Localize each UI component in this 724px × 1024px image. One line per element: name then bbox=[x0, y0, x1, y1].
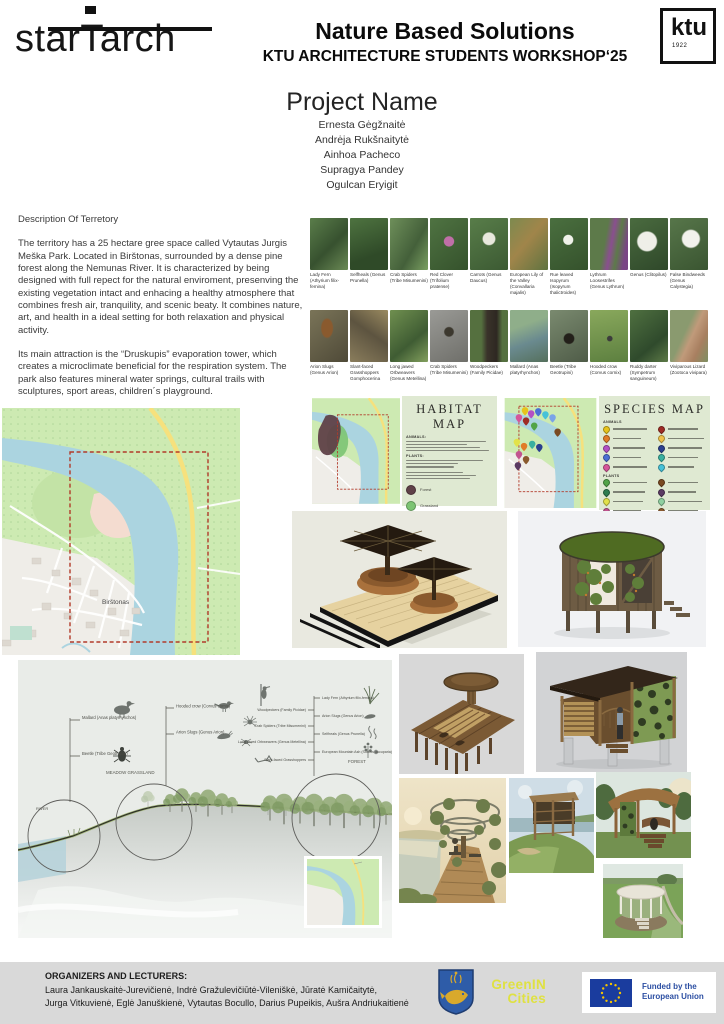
photo-lookout-pavilion bbox=[509, 778, 594, 873]
legend-line bbox=[406, 444, 467, 445]
eu-funding-line-2: European Union bbox=[642, 992, 704, 1002]
member-name: Ernesta Gėgžnaitė bbox=[0, 119, 724, 132]
species-card: Red Clover (Trifolium pratense) bbox=[430, 218, 468, 304]
project-title: Project Name bbox=[0, 88, 724, 117]
legend-line bbox=[406, 472, 463, 473]
birstonas-coat-of-arms bbox=[437, 968, 475, 1016]
section-label: European Mountain Ash (Sorbus aucuparia) bbox=[322, 750, 392, 754]
render-deck-towers bbox=[292, 511, 507, 648]
member-name: Andrėja Rukšnaitytė bbox=[0, 134, 724, 147]
species-grid-row2: Arion Slugs (Genus Arion) Slant-faced Gr… bbox=[310, 310, 708, 396]
logo-crossbar bbox=[48, 27, 212, 31]
habitat-mini-map-frame bbox=[310, 396, 402, 506]
habitat-legend-block: HABITAT MAP ANIMALS: PLANTS: Forest Gras… bbox=[406, 396, 493, 504]
species-caption: Hooded crow (Corvus cornix) bbox=[590, 364, 628, 396]
species-card: Selfheals (Genus Prunella) bbox=[350, 218, 388, 304]
species-card: Viviparous Lizard (Zootoca vivipara) bbox=[670, 310, 708, 396]
studio-logo-text: starTarch bbox=[15, 18, 176, 60]
legend-line bbox=[406, 466, 454, 467]
legend-item bbox=[603, 445, 652, 452]
species-photo bbox=[430, 218, 468, 270]
legend-item bbox=[603, 479, 652, 486]
species-card: Arion Slugs (Genus Arion) bbox=[310, 310, 348, 396]
footer-bar: ORGANIZERS AND LECTURERS: Laura Jankausk… bbox=[0, 962, 724, 1024]
species-caption: Mallard (Anas platyrhynchos) bbox=[510, 364, 548, 396]
organizers-line-1: Laura Jankauskaitė-Jurevičienė, Indrė Gr… bbox=[45, 984, 425, 997]
species-caption: False Bindweeds (Genus Calystegia) bbox=[670, 272, 708, 304]
logo-mark bbox=[85, 6, 96, 14]
species-photo bbox=[390, 218, 428, 270]
species-animal-legend bbox=[603, 426, 706, 471]
location-map: Birštonas bbox=[2, 408, 240, 655]
species-caption: Slant-faced Grasshoppers Gomphocerina bbox=[350, 364, 388, 396]
greenin-line-1: GreenIN bbox=[474, 978, 546, 992]
species-card: Ruddy darter (Sympetrum sanguineum) bbox=[630, 310, 668, 396]
species-caption: Arion Slugs (Genus Arion) bbox=[310, 364, 348, 396]
section-label: Hooded crow (Corvus cornix) bbox=[176, 704, 231, 709]
poster-subtitle: KTU ARCHITECTURE STUDENTS WORKSHOP‘25 bbox=[235, 48, 655, 66]
species-animals-heading: ANIMALS bbox=[603, 420, 706, 424]
species-card: Beetle (Tribe Geotrupini) bbox=[550, 310, 588, 396]
species-caption: European Lily of the Valley (Convallaria… bbox=[510, 272, 548, 304]
species-mini-map bbox=[504, 398, 597, 508]
legend-item bbox=[658, 479, 707, 486]
legend-item bbox=[658, 498, 707, 505]
species-caption: Carrots (Genus Daucus) bbox=[470, 272, 508, 304]
photo-round-gazebo bbox=[603, 864, 683, 938]
poster-title: Nature Based Solutions bbox=[235, 18, 655, 45]
greenin-line-2: Cities bbox=[474, 992, 546, 1006]
inset-map bbox=[304, 856, 382, 928]
project-block: Project Name Ernesta Gėgžnaitė Andrėja R… bbox=[0, 88, 724, 192]
section-label: Arion Slugs (Genus Arion) bbox=[322, 714, 364, 718]
legend-item bbox=[603, 435, 652, 442]
eu-flag bbox=[590, 979, 632, 1007]
species-card: Lady Fern (Athyrium filix-femina) bbox=[310, 218, 348, 304]
species-caption: Genus (Clitopilus) bbox=[630, 272, 668, 304]
species-grid-row1: Lady Fern (Athyrium filix-femina) Selfhe… bbox=[310, 218, 708, 304]
species-card: Mallard (Anas platyrhynchos) bbox=[510, 310, 548, 396]
species-card: Genus (Clitopilus) bbox=[630, 218, 668, 304]
description-paragraph-2: Its main attraction is the “Druskupis” e… bbox=[18, 349, 304, 398]
section-label: Crab Spiders (Tribe Misumenini) bbox=[254, 724, 306, 728]
species-photo bbox=[510, 310, 548, 362]
species-photo bbox=[310, 310, 348, 362]
eu-funding-badge: Funded by the European Union bbox=[582, 972, 716, 1013]
legend-item bbox=[658, 426, 707, 433]
territory-description: Description Of Terretory The territory h… bbox=[18, 214, 304, 410]
species-card: Crab Spiders (Tribe Misumenini) bbox=[390, 218, 428, 304]
species-caption: Crab Spiders (Tribe Misumenini) bbox=[430, 364, 468, 396]
legend-line bbox=[406, 447, 480, 448]
ktu-logo-year: 1922 bbox=[672, 43, 713, 49]
ktu-logo-text: ktu bbox=[671, 16, 713, 40]
habitat-map-panel: HABITAT MAP ANIMALS: PLANTS: Forest Gras… bbox=[310, 396, 497, 506]
species-caption: Rue leaved Isopyrum (Isopyrum thalictroi… bbox=[550, 272, 588, 304]
species-card: Slant-faced Grasshoppers Gomphocerina bbox=[350, 310, 388, 396]
legend-item bbox=[658, 435, 707, 442]
eu-funding-text: Funded by the European Union bbox=[642, 982, 704, 1002]
species-photo bbox=[350, 310, 388, 362]
legend-line bbox=[406, 450, 489, 451]
species-mini-map-frame bbox=[502, 396, 599, 510]
species-card: Lythrum Loosestrifes (Genus Lythrum) bbox=[590, 218, 628, 304]
species-photo bbox=[590, 310, 628, 362]
section-label: Selfheals (Genus Prunella) bbox=[322, 732, 365, 736]
section-label: Long jawed Orbweavers (Genus Metellina) bbox=[238, 740, 306, 744]
section-diagram: Mallard (Anas platyrhynchos) Beetle (Tri… bbox=[18, 660, 392, 938]
species-card: Long jawed Orbweavers (Genus Metellina) bbox=[390, 310, 428, 396]
species-card: Woodpeckers (Family Picidae) bbox=[470, 310, 508, 396]
species-card: Carrots (Genus Daucus) bbox=[470, 218, 508, 304]
species-caption: Viviparous Lizard (Zootoca vivipara) bbox=[670, 364, 708, 396]
description-heading: Description Of Terretory bbox=[18, 214, 304, 226]
legend-item bbox=[603, 454, 652, 461]
legend-item bbox=[658, 445, 707, 452]
legend-item bbox=[603, 489, 652, 496]
species-photo bbox=[590, 218, 628, 270]
town-label: Birštonas bbox=[102, 599, 130, 606]
member-name: Supragya Pandey bbox=[0, 164, 724, 177]
studio-logo: starTarch bbox=[15, 18, 215, 74]
species-caption: Crab Spiders (Tribe Misumenini) bbox=[390, 272, 428, 304]
habitat-legend-forest: Forest bbox=[406, 485, 493, 495]
eu-funding-line-1: Funded by the bbox=[642, 982, 704, 992]
species-caption: Selfheals (Genus Prunella) bbox=[350, 272, 388, 304]
photo-curved-pavilion bbox=[596, 772, 691, 858]
species-photo bbox=[630, 310, 668, 362]
member-name: Ainhoa Pacheco bbox=[0, 149, 724, 162]
species-caption: Ruddy darter (Sympetrum sanguineum) bbox=[630, 364, 668, 396]
river-water bbox=[18, 836, 66, 882]
section-label: Woodpeckers (Family Picidae) bbox=[257, 708, 306, 712]
species-caption: Long jawed Orbweavers (Genus Metellina) bbox=[390, 364, 428, 396]
species-legend-block: SPECIES MAP ANIMALS PLANTS bbox=[603, 396, 706, 508]
legend-line bbox=[406, 475, 476, 476]
species-card: Crab Spiders (Tribe Misumenini) bbox=[430, 310, 468, 396]
render-green-roof-tower bbox=[518, 511, 706, 647]
legend-label: Forest bbox=[420, 487, 431, 492]
habitat-map-title: HABITAT MAP bbox=[406, 402, 493, 432]
legend-line bbox=[406, 460, 483, 461]
section-label: Slant-faced Grasshoppers bbox=[264, 758, 306, 762]
species-photo bbox=[670, 310, 708, 362]
green-roof bbox=[560, 532, 664, 562]
species-card: Rue leaved Isopyrum (Isopyrum thalictroi… bbox=[550, 218, 588, 304]
species-photo bbox=[670, 218, 708, 270]
species-card: False Bindweeds (Genus Calystegia) bbox=[670, 218, 708, 304]
legend-item bbox=[603, 464, 652, 471]
organizers-line-2: Jurga Vitkuvienė, Eglė Januškienė, Vytau… bbox=[45, 997, 425, 1010]
ktu-logo: ktu 1922 bbox=[660, 8, 716, 64]
legend-item bbox=[658, 454, 707, 461]
species-card: Hooded crow (Corvus cornix) bbox=[590, 310, 628, 396]
species-card: European Lily of the Valley (Convallaria… bbox=[510, 218, 548, 304]
species-caption: Red Clover (Trifolium pratense) bbox=[430, 272, 468, 304]
species-photo bbox=[390, 310, 428, 362]
section-label: Arion Slugs (Genus Arion) bbox=[176, 730, 225, 735]
person-figure bbox=[617, 707, 623, 739]
grassland-dot bbox=[406, 501, 416, 511]
species-plants-heading: PLANTS bbox=[603, 474, 706, 478]
species-photo bbox=[310, 218, 348, 270]
section-label: Lady Fern (Athyrium filix-femina) bbox=[322, 696, 374, 700]
species-map-panel: SPECIES MAP ANIMALS PLANTS bbox=[502, 396, 710, 510]
species-caption: Woodpeckers (Family Picidae) bbox=[470, 364, 508, 396]
legend-item bbox=[603, 426, 652, 433]
zone-label-meadow: MEADOW GRASSLAND bbox=[106, 770, 155, 775]
species-photo bbox=[430, 310, 468, 362]
habitat-plants-heading: PLANTS: bbox=[406, 454, 493, 458]
species-caption: Lady Fern (Athyrium filix-femina) bbox=[310, 272, 348, 304]
legend-label: Grassland bbox=[420, 503, 438, 508]
species-photo bbox=[350, 218, 388, 270]
render-green-wall-pavilion bbox=[536, 652, 687, 772]
legend-item bbox=[658, 489, 707, 496]
species-photo bbox=[510, 218, 548, 270]
legend-line bbox=[406, 478, 470, 479]
greenin-cities-logo: GreenIN Cities bbox=[474, 978, 546, 1006]
species-photo bbox=[550, 310, 588, 362]
render-deck-round-canopy bbox=[399, 654, 524, 774]
organizers-heading: ORGANIZERS AND LECTURERS: bbox=[45, 971, 425, 981]
legend-item bbox=[603, 498, 652, 505]
zone-label-river: RIVER bbox=[36, 806, 48, 811]
habitat-legend-grassland: Grassland bbox=[406, 501, 493, 511]
description-paragraph-1: The territory has a 25 hectare gree spac… bbox=[18, 238, 304, 337]
photo-boardwalk-pergolas bbox=[399, 778, 506, 903]
species-photo bbox=[630, 218, 668, 270]
section-label: Beetle (Tribe Geotrupini) bbox=[82, 751, 128, 756]
organizers-block: ORGANIZERS AND LECTURERS: Laura Jankausk… bbox=[45, 971, 425, 1010]
habitat-mini-map bbox=[312, 398, 400, 504]
species-photo bbox=[470, 310, 508, 362]
legend-line bbox=[406, 441, 486, 442]
legend-item bbox=[658, 464, 707, 471]
legend-line bbox=[406, 463, 458, 464]
species-caption: Lythrum Loosestrifes (Genus Lythrum) bbox=[590, 272, 628, 304]
habitat-animals-heading: ANIMALS: bbox=[406, 435, 493, 439]
species-caption: Beetle (Tribe Geotrupini) bbox=[550, 364, 588, 396]
species-photo bbox=[470, 218, 508, 270]
poster-title-block: Nature Based Solutions KTU ARCHITECTURE … bbox=[235, 18, 655, 66]
zone-label-forest: FOREST bbox=[348, 759, 366, 764]
workshop-poster: starTarch Nature Based Solutions KTU ARC… bbox=[0, 0, 724, 1024]
member-name: Ogulcan Eryigit bbox=[0, 179, 724, 192]
species-map-title: SPECIES MAP bbox=[603, 402, 706, 417]
forest-dot bbox=[406, 485, 416, 495]
species-plant-legend bbox=[603, 479, 706, 515]
section-label: Mallard (Anas platyrhynchos) bbox=[82, 715, 137, 720]
species-photo bbox=[550, 218, 588, 270]
